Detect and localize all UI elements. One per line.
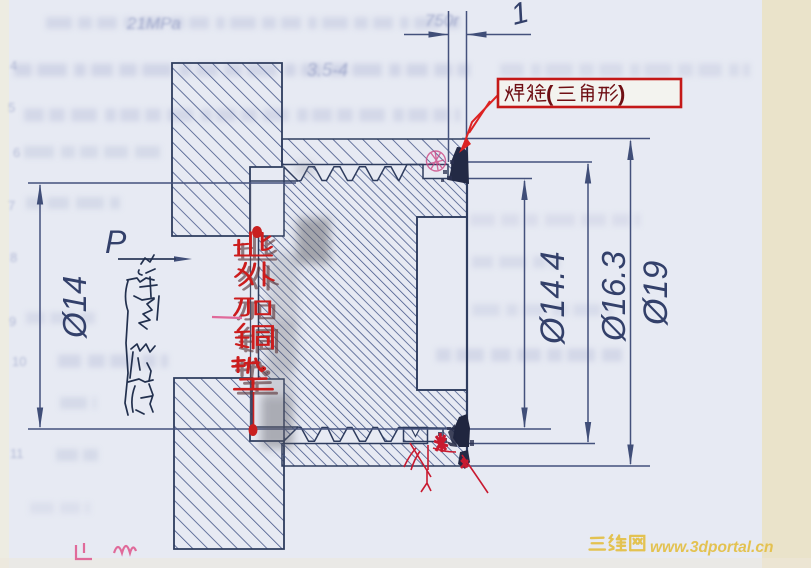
svg-text:21MPa: 21MPa (126, 14, 181, 33)
svg-text:4: 4 (10, 58, 17, 73)
svg-text:8: 8 (10, 250, 17, 265)
svg-text:(: ( (546, 81, 554, 106)
svg-text:3.5-4: 3.5-4 (307, 60, 348, 80)
svg-text:7: 7 (8, 198, 15, 213)
svg-text:www.3dportal.cn: www.3dportal.cn (650, 539, 773, 556)
svg-text:5: 5 (8, 100, 15, 115)
svg-text:10: 10 (12, 354, 26, 369)
svg-text:750r: 750r (425, 11, 460, 30)
svg-text:): ) (618, 81, 625, 106)
svg-text:Ø14: Ø14 (56, 276, 93, 339)
svg-text:6: 6 (13, 145, 20, 160)
svg-text:P: P (105, 224, 127, 260)
svg-text:Ø14.4: Ø14.4 (534, 251, 572, 345)
svg-text:11: 11 (10, 446, 24, 461)
svg-text:Ø16.3: Ø16.3 (595, 250, 632, 342)
svg-text:Ø19: Ø19 (637, 261, 675, 326)
svg-text:9: 9 (9, 314, 16, 329)
